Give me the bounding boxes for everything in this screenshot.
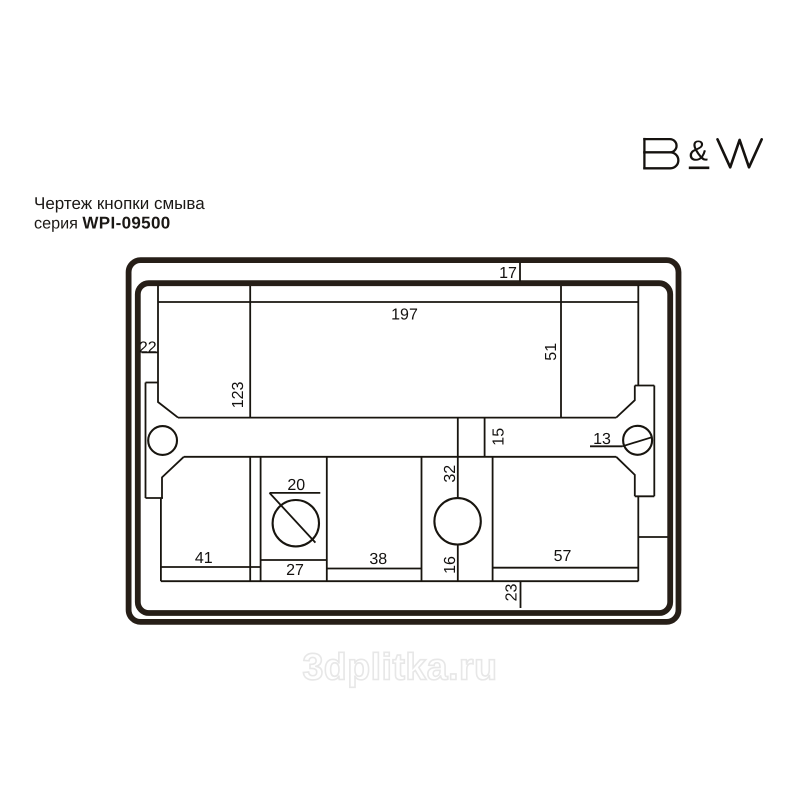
svg-text:32: 32 bbox=[442, 465, 459, 483]
svg-text:27: 27 bbox=[286, 562, 304, 579]
svg-text:15: 15 bbox=[490, 428, 507, 446]
svg-text:17: 17 bbox=[499, 265, 517, 282]
svg-text:38: 38 bbox=[369, 551, 387, 568]
svg-text:16: 16 bbox=[442, 556, 459, 574]
svg-text:23: 23 bbox=[503, 584, 520, 602]
svg-text:&: & bbox=[689, 136, 708, 168]
svg-text:123: 123 bbox=[230, 381, 247, 408]
svg-text:13: 13 bbox=[593, 431, 611, 448]
svg-text:41: 41 bbox=[195, 550, 213, 567]
svg-text:серия WPI-09500: серия WPI-09500 bbox=[34, 214, 171, 233]
svg-text:22: 22 bbox=[139, 339, 157, 356]
svg-text:57: 57 bbox=[554, 548, 572, 565]
svg-text:197: 197 bbox=[391, 307, 418, 324]
svg-text:51: 51 bbox=[543, 343, 560, 361]
svg-text:Чертеж кнопки смыва: Чертеж кнопки смыва bbox=[34, 194, 205, 213]
svg-text:3dplitka.ru: 3dplitka.ru bbox=[302, 646, 497, 688]
svg-text:20: 20 bbox=[287, 477, 305, 494]
